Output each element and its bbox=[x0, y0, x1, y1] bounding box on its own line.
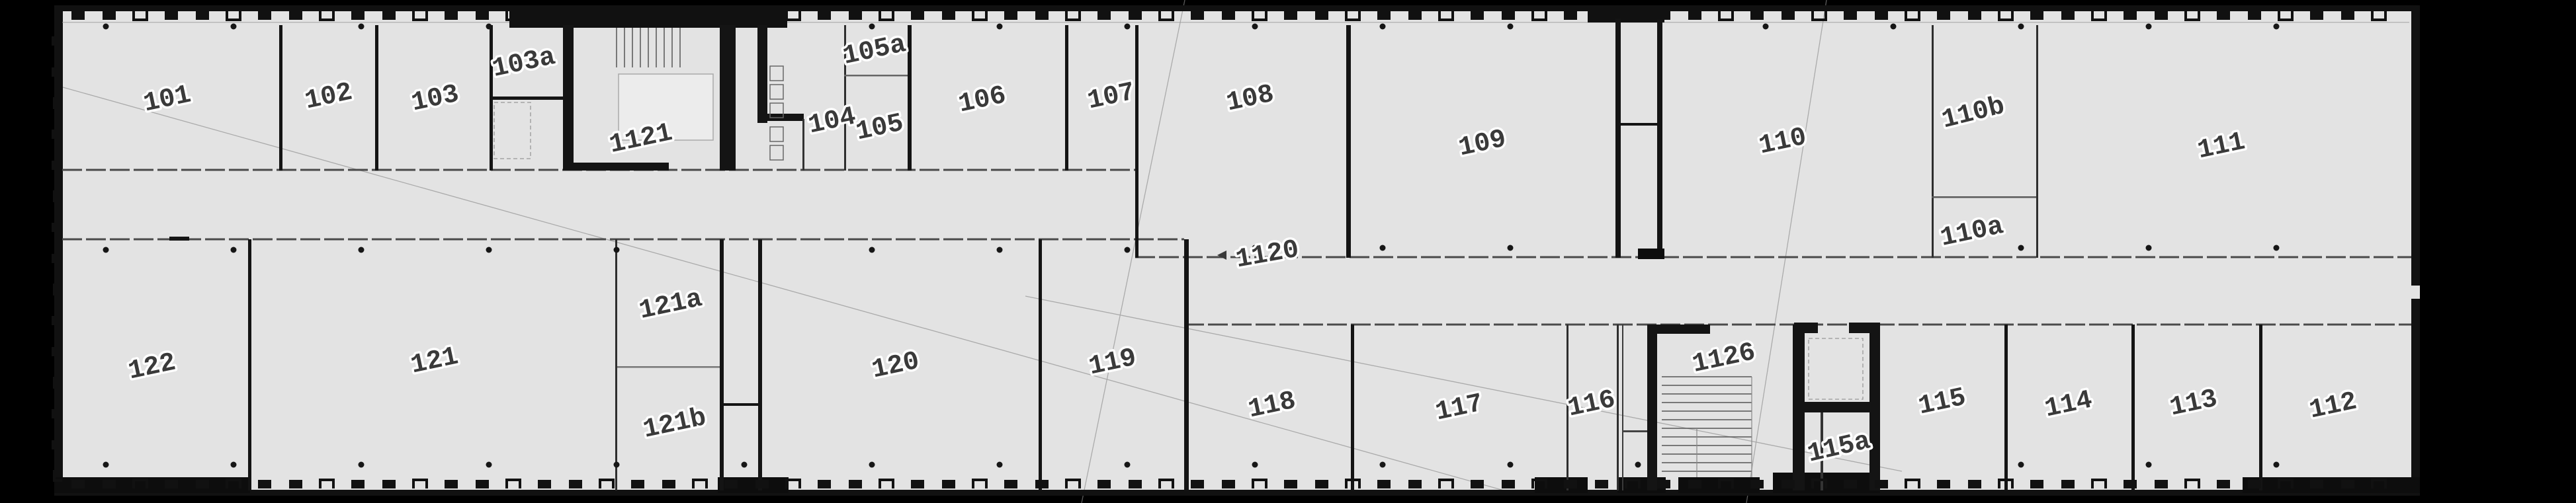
door-threshold bbox=[169, 237, 189, 241]
floor-plan-drawing: 101102103103a1121104105105a1061071081091… bbox=[0, 0, 2576, 503]
floor-plan-image: 101102103103a1121104105105a1061071081091… bbox=[0, 0, 2576, 503]
